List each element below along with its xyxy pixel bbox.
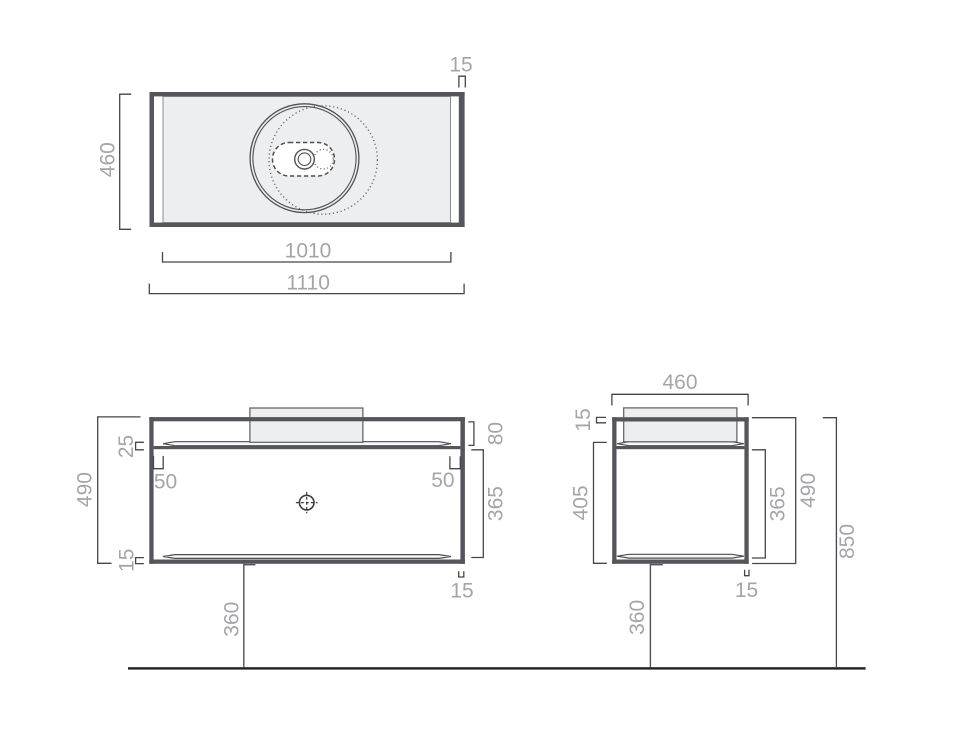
svg-text:365: 365 (767, 486, 790, 521)
svg-text:365: 365 (484, 486, 507, 521)
svg-text:490: 490 (74, 472, 97, 507)
svg-text:80: 80 (484, 422, 507, 445)
svg-text:460: 460 (662, 371, 697, 394)
svg-text:360: 360 (626, 600, 649, 635)
svg-text:850: 850 (836, 524, 859, 559)
svg-text:360: 360 (221, 602, 244, 637)
svg-text:15: 15 (115, 549, 138, 572)
svg-text:405: 405 (569, 485, 592, 520)
svg-text:15: 15 (735, 579, 758, 602)
svg-text:50: 50 (154, 471, 177, 494)
svg-text:460: 460 (96, 142, 119, 177)
svg-text:15: 15 (450, 579, 473, 602)
svg-text:25: 25 (115, 435, 138, 458)
svg-text:490: 490 (797, 473, 820, 508)
svg-text:15: 15 (449, 53, 472, 76)
svg-text:1010: 1010 (285, 240, 332, 263)
svg-text:15: 15 (572, 408, 595, 431)
svg-text:50: 50 (431, 469, 454, 492)
svg-text:1110: 1110 (286, 271, 330, 294)
